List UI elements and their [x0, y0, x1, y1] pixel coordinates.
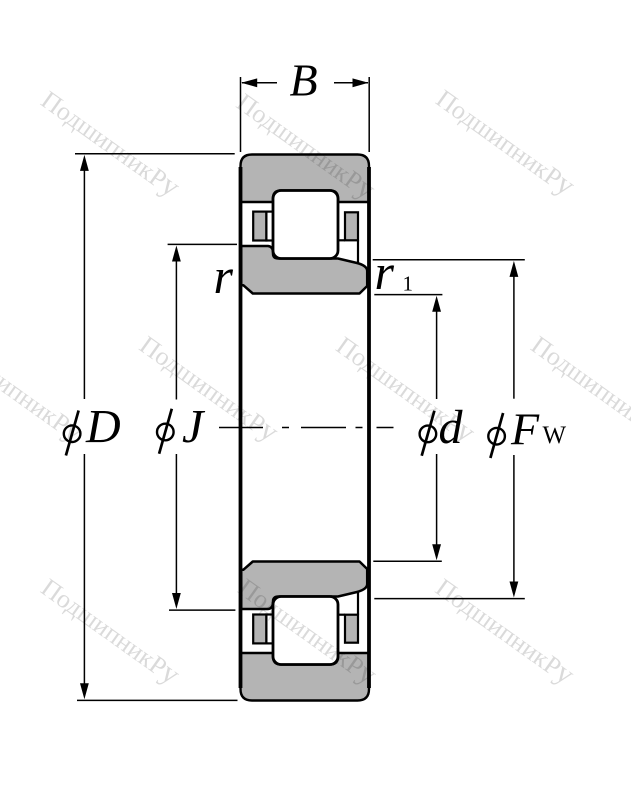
svg-text:1: 1	[403, 272, 414, 296]
svg-text:ПодшипникРу: ПодшипникРу	[0, 328, 89, 449]
svg-text:B: B	[289, 55, 317, 106]
svg-text:J: J	[182, 400, 206, 453]
svg-text:ПодшипникРу: ПодшипникРу	[35, 83, 186, 204]
svg-text:r: r	[214, 248, 234, 304]
svg-text:ПодшипникРу: ПодшипникРу	[35, 570, 186, 691]
svg-text:ПодшипникРу: ПодшипникРу	[330, 328, 481, 449]
svg-text:ПодшипникРу: ПодшипникРу	[430, 81, 581, 202]
svg-text:W: W	[543, 422, 567, 449]
svg-text:ПодшипникРу: ПодшипникРу	[430, 570, 581, 691]
svg-text:r: r	[375, 244, 395, 300]
svg-text:F: F	[510, 404, 540, 455]
svg-text:D: D	[85, 400, 121, 453]
svg-text:ПодшипникРу: ПодшипникРу	[525, 328, 631, 449]
